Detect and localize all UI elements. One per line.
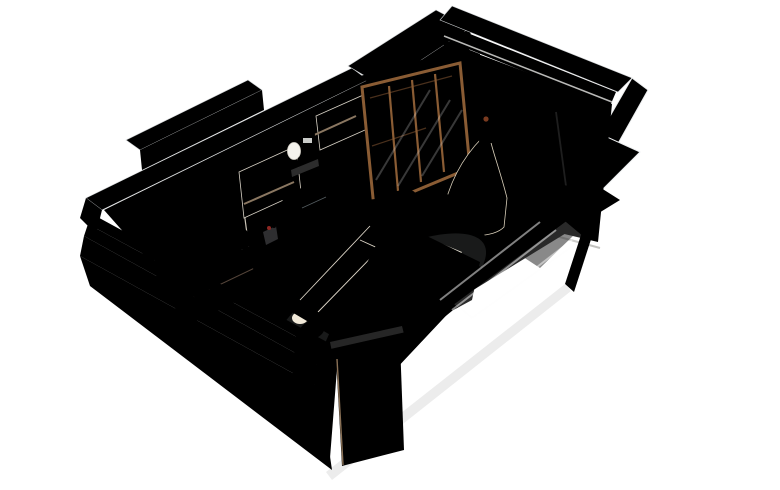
dress-bodice — [479, 123, 495, 143]
room-door — [336, 342, 404, 466]
bedroom-render-image — [0, 0, 780, 490]
room-render — [0, 0, 780, 490]
dress-form-neck — [483, 116, 488, 121]
egg-vase — [288, 143, 301, 160]
door-leaf — [336, 342, 404, 466]
lamp-base — [558, 185, 572, 190]
